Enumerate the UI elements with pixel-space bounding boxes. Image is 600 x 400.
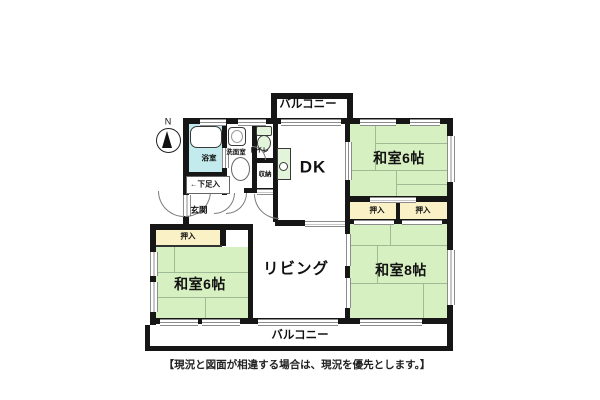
balcony-top-label: バルコニー <box>279 99 336 111</box>
door-arc <box>254 194 279 219</box>
sliding-door <box>345 142 352 180</box>
window <box>238 119 266 126</box>
wall-segment <box>150 224 253 230</box>
sliding-door <box>305 221 345 227</box>
tatami-line <box>390 224 391 245</box>
tatami-line <box>205 297 206 318</box>
wall-segment <box>345 180 350 224</box>
wall-segment <box>275 220 305 226</box>
kitchen-sink-bowl-icon <box>279 162 288 171</box>
wall-segment <box>248 224 253 318</box>
room-label-dk: DK <box>300 159 327 176</box>
room-label-washroom: 洗面室 <box>226 150 246 157</box>
tatami-line <box>423 283 424 318</box>
sliding-door <box>370 197 416 203</box>
wall-segment <box>345 308 350 318</box>
closet-fusuma-line <box>156 245 222 247</box>
sliding-door <box>354 220 394 225</box>
tatami-line <box>375 143 447 144</box>
floor-plan-image: N バルコニー バルコニー DK リビング 和室6帖 和室6帖 和室8帖 浴室 … <box>0 0 600 400</box>
window <box>360 319 422 326</box>
tatami-line <box>156 272 248 273</box>
room-label-tatami6-top: 和室6帖 <box>373 151 425 165</box>
window <box>281 119 341 126</box>
sliding-door <box>346 278 351 308</box>
tatami-line <box>350 245 447 246</box>
closet-label: 押入 <box>370 206 385 214</box>
tatami-line <box>351 170 447 171</box>
tatami-line <box>156 297 248 298</box>
room-label-toilet: トイレ <box>249 148 269 155</box>
room-label-entrance: 玄関 <box>190 206 207 215</box>
label-shoe-cabinet: ←下足入 <box>190 180 220 188</box>
window <box>150 282 158 312</box>
disclaimer-text: 【現況と図面が相違する場合は、現況を優先とします。】 <box>164 360 431 371</box>
room-label-tatami6-left: 和室6帖 <box>174 277 226 291</box>
room-label-bath: 浴室 <box>202 154 217 162</box>
door-arc <box>158 191 184 217</box>
window <box>150 252 158 276</box>
wall-segment <box>145 346 453 351</box>
window <box>410 119 440 126</box>
north-label: N <box>165 118 172 127</box>
washbasin-bowl-icon <box>231 130 243 143</box>
bathtub-icon <box>190 126 222 148</box>
wall-segment <box>345 224 350 234</box>
wall-segment <box>345 266 350 278</box>
room-label-tatami8: 和室8帖 <box>375 263 427 277</box>
closet-label: 押入 <box>181 232 196 240</box>
room-label-storage: 収納 <box>259 172 272 179</box>
closet-label: 押入 <box>416 206 431 214</box>
window <box>447 250 455 305</box>
room-label-living: リビング <box>263 261 329 277</box>
window <box>447 136 455 182</box>
tatami-line <box>396 170 397 196</box>
wall-segment <box>347 93 353 124</box>
window <box>258 319 338 326</box>
wall-segment <box>220 224 226 246</box>
window <box>202 319 240 326</box>
tatami-line <box>396 184 447 185</box>
washing-machine-icon <box>231 157 250 181</box>
balcony-bottom-label: バルコニー <box>271 330 328 342</box>
sliding-door <box>346 234 351 266</box>
door-arc <box>226 193 247 214</box>
north-arrow-icon <box>162 131 172 148</box>
window <box>160 319 198 326</box>
window <box>200 119 226 126</box>
window <box>360 119 396 126</box>
tatami-line <box>174 247 175 272</box>
sliding-door <box>402 220 442 225</box>
tatami-line <box>350 283 447 284</box>
